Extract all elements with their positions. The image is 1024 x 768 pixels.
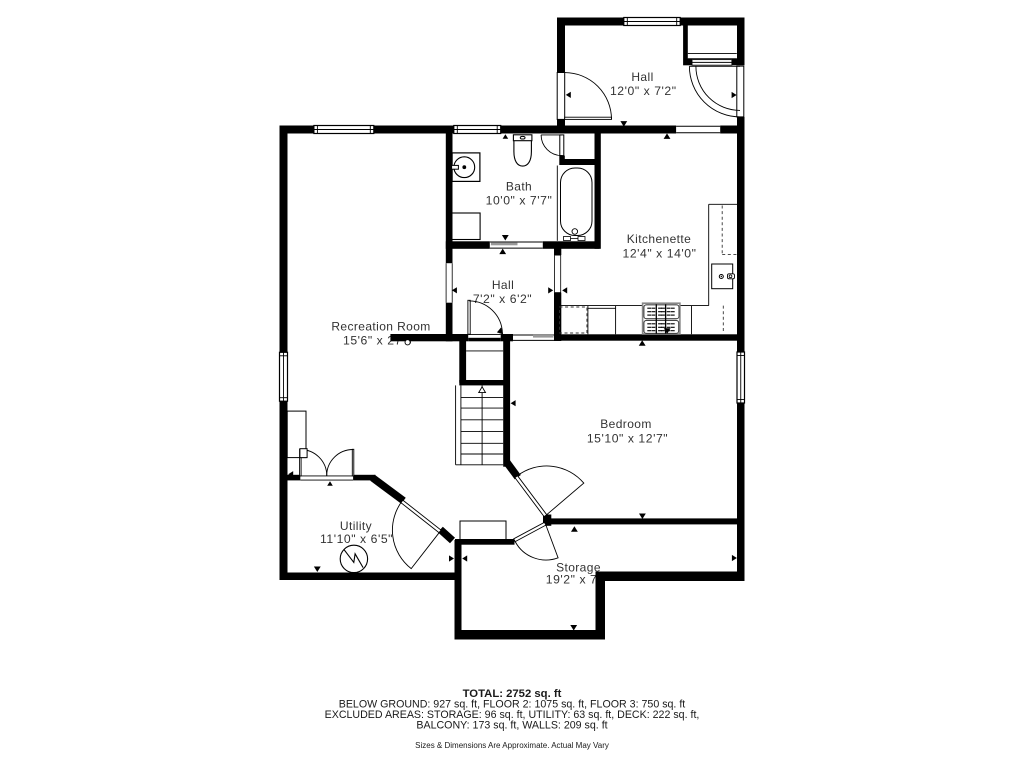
svg-text:15'10" x 12'7": 15'10" x 12'7" (587, 432, 668, 446)
svg-text:Bedroom: Bedroom (600, 417, 652, 431)
svg-text:Kitchenette: Kitchenette (627, 232, 691, 246)
svg-text:Utility: Utility (340, 519, 372, 533)
svg-text:7'2" x 6'2": 7'2" x 6'2" (473, 292, 532, 306)
svg-text:Hall: Hall (492, 278, 514, 292)
svg-text:Sizes & Dimensions Are Approxi: Sizes & Dimensions Are Approximate. Actu… (415, 741, 609, 750)
svg-text:10'0" x 7'7": 10'0" x 7'7" (486, 194, 553, 208)
svg-text:12'0" x 7'2": 12'0" x 7'2" (610, 84, 677, 98)
svg-text:12'4" x 14'0": 12'4" x 14'0" (623, 247, 697, 261)
svg-text:Hall: Hall (631, 70, 653, 84)
svg-text:Recreation Room: Recreation Room (331, 320, 430, 334)
svg-text:19'2" x 7': 19'2" x 7' (546, 573, 600, 587)
svg-text:11'10" x 6'5": 11'10" x 6'5" (320, 532, 393, 546)
svg-text:Bath: Bath (506, 180, 532, 194)
svg-text:BALCONY: 173 sq. ft, WALLS: 20: BALCONY: 173 sq. ft, WALLS: 209 sq. ft (416, 720, 607, 732)
